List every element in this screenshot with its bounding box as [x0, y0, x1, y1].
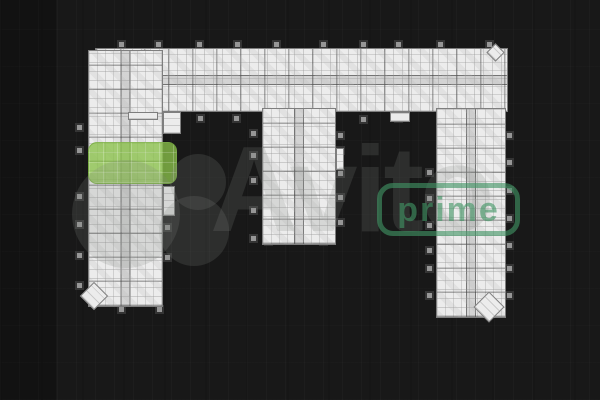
- balcony-square: [75, 123, 84, 132]
- listing-floor-plan-photo[interactable]: Avito prime: [0, 0, 600, 400]
- plan-protrusion: [128, 112, 158, 120]
- balcony-square: [196, 114, 205, 123]
- balcony-square: [75, 281, 84, 290]
- prime-badge: prime: [377, 183, 520, 236]
- balcony-square: [75, 251, 84, 260]
- plan-protrusion: [163, 112, 181, 134]
- background-left-strip: [0, 0, 56, 400]
- balcony-square: [425, 291, 434, 300]
- balcony-square: [75, 146, 84, 155]
- balcony-square: [425, 264, 434, 273]
- prime-badge-text: prime: [397, 193, 500, 227]
